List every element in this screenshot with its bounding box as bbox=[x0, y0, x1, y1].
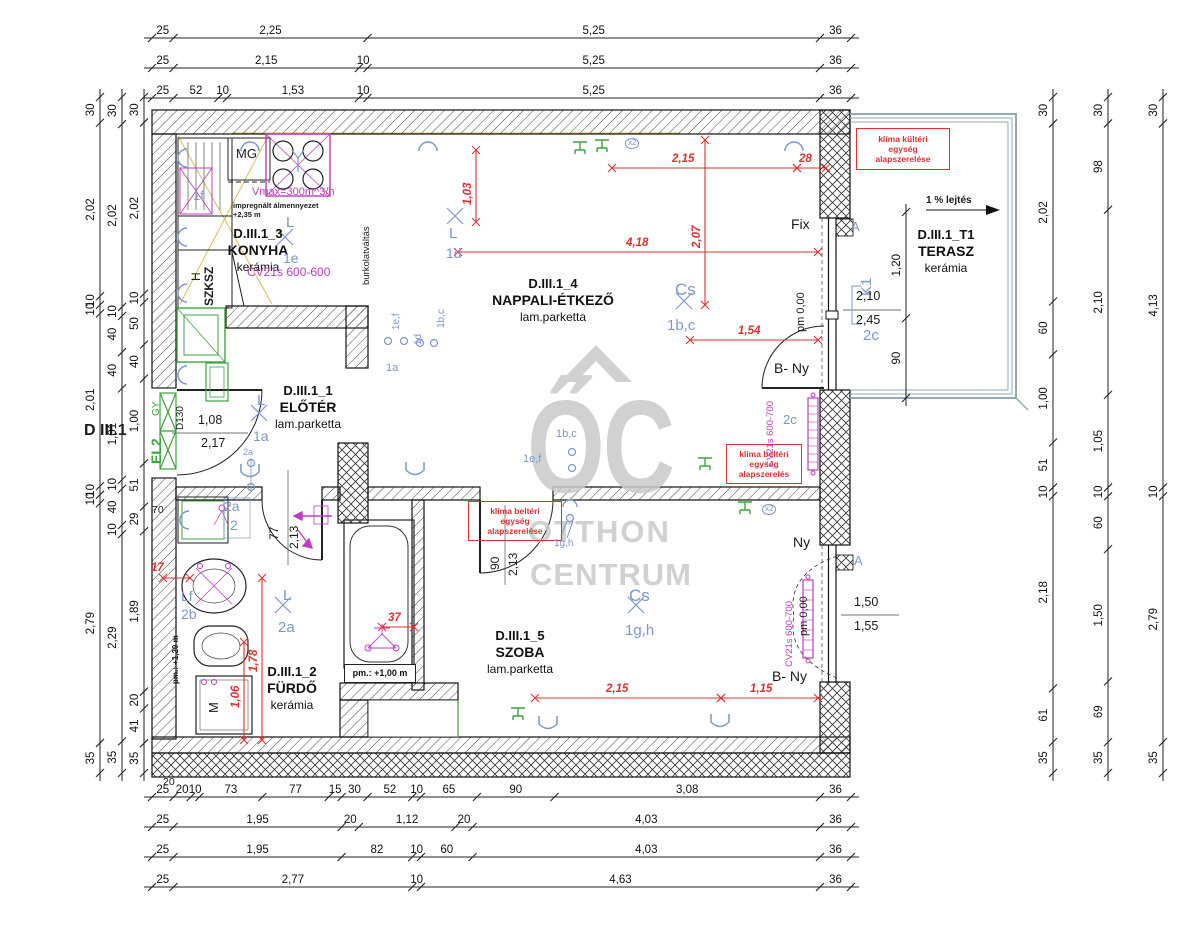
dim-label: 10 bbox=[410, 784, 423, 796]
dim-label: 1,00 bbox=[129, 410, 141, 432]
dim-label: 25 bbox=[156, 25, 169, 37]
dim-label: 10 bbox=[1038, 485, 1050, 498]
dim-label: 10 bbox=[216, 85, 229, 97]
dim-label: 36 bbox=[829, 25, 842, 37]
inner-dim bbox=[454, 248, 822, 256]
note-pm-100: pm.: +1,00 m bbox=[344, 664, 416, 683]
dim-label: 30 bbox=[107, 104, 119, 117]
dim-label: 25 bbox=[156, 85, 169, 97]
symbol-arc bbox=[241, 142, 259, 151]
dim-label: 1,12 bbox=[396, 814, 418, 826]
dim-label: 90 bbox=[509, 784, 522, 796]
symbol-arcR bbox=[178, 149, 187, 167]
dim-label: 36 bbox=[829, 844, 842, 856]
dim-label: 40 bbox=[107, 364, 119, 377]
dim-label: 1,00 bbox=[1038, 387, 1050, 409]
dim-label: 29 bbox=[129, 513, 141, 526]
symbol-u bbox=[406, 462, 424, 475]
dim-label: 10 bbox=[85, 303, 97, 316]
dim-label: 30 bbox=[1038, 104, 1050, 117]
symbol-sock bbox=[738, 502, 752, 514]
dim-label: 60 bbox=[1038, 322, 1050, 335]
symbol-c bbox=[569, 465, 576, 472]
dim-chain: 25201073771530521065903,0836 bbox=[144, 784, 859, 801]
dim-chain: 302,021050401,0051291,89204135 bbox=[129, 89, 148, 781]
dim-label: 51 bbox=[1038, 459, 1050, 472]
symbol-sock bbox=[698, 458, 712, 470]
dim-label: 35 bbox=[1038, 751, 1050, 764]
dim-label: 2,79 bbox=[1148, 608, 1160, 630]
dim-chain: 252,255,2536 bbox=[144, 25, 859, 42]
symbol-X bbox=[447, 208, 463, 224]
symbol-u bbox=[539, 716, 557, 729]
dim-label: 40 bbox=[129, 355, 141, 368]
dim-label: 30 bbox=[129, 103, 141, 116]
dim-label: 41 bbox=[129, 720, 141, 733]
floor-plan-canvas: 252,255,2536252,15105,25362552101,53105,… bbox=[0, 0, 1192, 939]
dim-label: 1,50 bbox=[1093, 604, 1105, 626]
dim-chain: 304,13102,7935 bbox=[1148, 89, 1167, 781]
symbol-arcR bbox=[178, 366, 187, 384]
dim-label: 82 bbox=[371, 844, 384, 856]
dim-label: 73 bbox=[224, 784, 237, 796]
symbol-arcR bbox=[180, 511, 189, 529]
dim-label: 10 bbox=[107, 305, 119, 318]
dim-label: 2,02 bbox=[85, 198, 97, 220]
dim-label: 25 bbox=[156, 844, 169, 856]
dim-label: 10 bbox=[357, 85, 370, 97]
dim-label: 1,05 bbox=[1093, 430, 1105, 452]
dim-label: 15 bbox=[329, 784, 342, 796]
dim-chain: 251,95201,12204,0336 bbox=[144, 814, 859, 831]
dim-label: 2,18 bbox=[1038, 581, 1050, 603]
dim-label: 1,53 bbox=[282, 85, 304, 97]
dim-label: 5,25 bbox=[583, 85, 605, 97]
dim-label: 36 bbox=[829, 55, 842, 67]
dim-label: 36 bbox=[829, 874, 842, 886]
dim-label: 4,03 bbox=[635, 844, 657, 856]
dim-label: 36 bbox=[829, 814, 842, 826]
dim-label: 4,13 bbox=[1148, 294, 1160, 316]
dim-chain: 302,021040401,011040102,2935 bbox=[107, 89, 126, 781]
dim-label: 60 bbox=[1093, 516, 1105, 529]
dim-label: 10 bbox=[189, 784, 202, 796]
dim-label: 4,03 bbox=[635, 814, 657, 826]
dim-label: 2,02 bbox=[1038, 201, 1050, 223]
symbol-c bbox=[385, 338, 392, 345]
dim-label: 35 bbox=[1148, 751, 1160, 764]
symbol-c bbox=[417, 340, 424, 347]
dim-label: 30 bbox=[1093, 104, 1105, 117]
dim-label: 3,08 bbox=[676, 784, 698, 796]
inner-dim bbox=[686, 336, 822, 344]
dim-label: 25 bbox=[156, 784, 169, 796]
dim-label: 20 bbox=[458, 814, 471, 826]
dim-label: 35 bbox=[107, 751, 119, 764]
dim-label: 50 bbox=[129, 317, 141, 330]
dim-label: 2,02 bbox=[129, 197, 141, 219]
dim-label: 2,79 bbox=[85, 612, 97, 634]
dim-label: 10 bbox=[357, 55, 370, 67]
dim-chain: 252,77104,6336 bbox=[144, 874, 859, 891]
dim-label: 2,02 bbox=[107, 204, 119, 226]
dim-label: 30 bbox=[348, 784, 361, 796]
dim-label: 1,89 bbox=[129, 600, 141, 622]
dim-label: 20 bbox=[176, 784, 189, 796]
dim-label: 51 bbox=[129, 479, 141, 492]
dim-label: 90 bbox=[891, 352, 903, 365]
symbol-sock bbox=[511, 708, 525, 720]
inner-dim bbox=[793, 164, 830, 172]
dim-chain: 30982,101,0510601,506935 bbox=[1093, 89, 1112, 781]
dim-label: 10 bbox=[1148, 485, 1160, 498]
dim-label: 2,29 bbox=[107, 627, 119, 649]
dim-chain: 302,0210102,0110102,7935 bbox=[85, 89, 104, 781]
symbol-arcR bbox=[178, 284, 187, 302]
dim-label: 2,10 bbox=[1093, 291, 1105, 313]
symbol-X bbox=[251, 405, 267, 421]
dim-label: 30 bbox=[1148, 104, 1160, 117]
dim-label: 10 bbox=[410, 874, 423, 886]
symbol-arcR bbox=[178, 228, 187, 246]
inner-dim bbox=[159, 574, 194, 582]
dim-label: 2,01 bbox=[85, 389, 97, 411]
dim-label: 65 bbox=[443, 784, 456, 796]
room-szoba: D.III.1_5 SZOBA lam.parketta bbox=[487, 628, 553, 677]
symbol-pend bbox=[561, 500, 577, 538]
room-nappali: D.III.1_4 NAPPALI-ÉTKEZŐ lam.parketta bbox=[492, 276, 614, 325]
dim-label: 1,95 bbox=[246, 844, 268, 856]
symbol-c bbox=[248, 460, 255, 467]
dim-label: 10 bbox=[1093, 485, 1105, 498]
note-klima-outdoor: klíma kültéri egység alapszerelése bbox=[856, 128, 950, 170]
symbol-X bbox=[676, 293, 692, 309]
symbol-u bbox=[711, 714, 729, 727]
dim-label: 60 bbox=[440, 844, 453, 856]
inner-dim bbox=[378, 623, 418, 631]
dim-chain: 2552101,53105,2536 bbox=[144, 85, 859, 102]
dimension-layer: 252,255,2536252,15105,25362552101,53105,… bbox=[0, 0, 1192, 939]
dim-chain: 251,958210604,0336 bbox=[144, 844, 859, 861]
dim-label: 10 bbox=[85, 493, 97, 506]
symbol-c bbox=[569, 449, 576, 456]
dim-label: 25 bbox=[156, 814, 169, 826]
room-terasz: D.III.1_T1 TERASZ kerámia bbox=[917, 227, 974, 276]
dim-label: 69 bbox=[1093, 705, 1105, 718]
dim-label: 36 bbox=[829, 85, 842, 97]
inner-dim bbox=[472, 146, 480, 226]
symbol-X bbox=[628, 597, 644, 613]
dim-label: 35 bbox=[85, 752, 97, 765]
dim-label: 98 bbox=[1093, 160, 1105, 173]
inner-dim bbox=[701, 136, 709, 309]
dim-chain: 302,02601,0051102,186135 bbox=[1038, 89, 1057, 781]
room-eloter: D.III.1_1 ELŐTÉR lam.parketta bbox=[275, 383, 341, 432]
dim-label: 1,95 bbox=[246, 814, 268, 826]
dim-label: 2,77 bbox=[282, 874, 304, 886]
dim-label: 4,63 bbox=[609, 874, 631, 886]
symbol-arc bbox=[785, 142, 803, 151]
dim-label: 10 bbox=[107, 478, 119, 491]
symbol-c bbox=[431, 340, 438, 347]
dim-label: 2,15 bbox=[255, 55, 277, 67]
dim-label: 5,25 bbox=[583, 25, 605, 37]
symbol-c bbox=[401, 338, 408, 345]
dim-label: 2,25 bbox=[259, 25, 281, 37]
inner-dim bbox=[240, 638, 248, 744]
dim-label: 20 bbox=[344, 814, 357, 826]
dim-label: 77 bbox=[289, 784, 302, 796]
dim-label: 35 bbox=[1093, 751, 1105, 764]
dim-label: 40 bbox=[107, 501, 119, 514]
symbol-X bbox=[275, 597, 291, 613]
dim-label: 30 bbox=[85, 103, 97, 116]
dim-label: 1,20 bbox=[891, 254, 903, 276]
dim-label: 61 bbox=[1038, 709, 1050, 722]
symbol-sock bbox=[573, 142, 587, 154]
dim-label: 10 bbox=[107, 523, 119, 536]
dim-label: 40 bbox=[107, 328, 119, 341]
dim-label: 52 bbox=[190, 85, 203, 97]
note-klima-indoor-2: klíma beltéri egység alapszerelése bbox=[468, 501, 562, 541]
dim-label: 52 bbox=[383, 784, 396, 796]
dim-label: 36 bbox=[829, 784, 842, 796]
note-klima-indoor-1: klíma beltéri egység alapszerelés bbox=[726, 444, 802, 484]
room-furdo: D.III.1_2 FÜRDŐ kerámia bbox=[267, 664, 317, 713]
dim-label: 10 bbox=[129, 292, 141, 305]
dim-label: 25 bbox=[156, 55, 169, 67]
dim-label: 25 bbox=[156, 874, 169, 886]
symbol-arc bbox=[419, 142, 437, 151]
dim-label: 35 bbox=[129, 752, 141, 765]
dim-label: 5,25 bbox=[583, 55, 605, 67]
dim-label: 1,01 bbox=[107, 423, 119, 445]
dim-chain: 252,15105,2536 bbox=[144, 55, 859, 72]
dim-label: 20 bbox=[129, 694, 141, 707]
symbol-c bbox=[248, 484, 255, 491]
room-konyha: D.III.1_3 KONYHA kerámia bbox=[228, 226, 289, 275]
inner-dim bbox=[717, 694, 822, 702]
inner-dim bbox=[531, 694, 725, 702]
symbol-sock bbox=[595, 140, 609, 152]
dim-label: 10 bbox=[410, 844, 423, 856]
inner-dim bbox=[258, 574, 266, 744]
dim-chain: 1,2090 bbox=[891, 204, 910, 406]
